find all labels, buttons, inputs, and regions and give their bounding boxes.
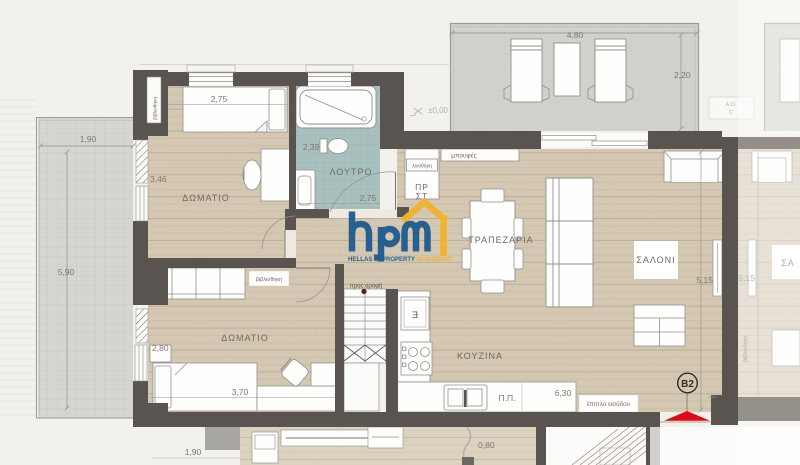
svg-text:μπουφές: μπουφές bbox=[451, 152, 477, 160]
svg-text:5,15: 5,15 bbox=[696, 275, 713, 285]
svg-text:3,70: 3,70 bbox=[232, 387, 249, 397]
svg-text:1,90: 1,90 bbox=[185, 447, 202, 457]
svg-text:ΤΡΑΠΕΖΑΡΙΑ: ΤΡΑΠΕΖΑΡΙΑ bbox=[468, 235, 533, 245]
svg-text:2,39: 2,39 bbox=[303, 142, 320, 152]
svg-text:MANAGEMENT: MANAGEMENT bbox=[417, 256, 453, 263]
svg-text:2,20: 2,20 bbox=[674, 70, 691, 80]
svg-text:Ǝ: Ǝ bbox=[412, 310, 418, 320]
svg-text:βιβλιοθήκη: βιβλιοθήκη bbox=[256, 276, 283, 283]
svg-text:HELLAS: HELLAS bbox=[348, 256, 373, 263]
svg-text:Π.Π.: Π.Π. bbox=[499, 393, 516, 403]
svg-text:1,90: 1,90 bbox=[80, 134, 97, 144]
svg-text:C: C bbox=[729, 110, 733, 116]
svg-text:PROPERTY: PROPERTY bbox=[382, 256, 415, 263]
svg-text:6,30: 6,30 bbox=[555, 388, 572, 398]
svg-text:2,75: 2,75 bbox=[360, 193, 377, 203]
svg-text:B2: B2 bbox=[681, 379, 694, 390]
svg-text:ΔΩΜΑΤΙΟ: ΔΩΜΑΤΙΟ bbox=[182, 193, 230, 203]
svg-text:3,46: 3,46 bbox=[150, 174, 167, 184]
svg-text:ΛΟΥΤΡΟ: ΛΟΥΤΡΟ bbox=[329, 167, 372, 177]
svg-text:Α.Ο.: Α.Ο. bbox=[725, 102, 736, 108]
svg-text:5,90: 5,90 bbox=[58, 267, 75, 277]
svg-text:προς οροφή: προς οροφή bbox=[350, 283, 383, 290]
svg-text:±0,00: ±0,00 bbox=[428, 106, 449, 115]
svg-text:έπιπλο εισόδου: έπιπλο εισόδου bbox=[587, 400, 631, 408]
svg-text:4,80: 4,80 bbox=[567, 30, 584, 40]
svg-text:ΔΩΜΑΤΙΟ: ΔΩΜΑΤΙΟ bbox=[221, 333, 269, 343]
svg-text:2,80: 2,80 bbox=[152, 343, 169, 353]
svg-text:0,80: 0,80 bbox=[478, 440, 495, 450]
svg-text:βιβλιοθήκη: βιβλιοθήκη bbox=[152, 97, 159, 120]
svg-text:ΚΟΥΖΙΝΑ: ΚΟΥΖΙΝΑ bbox=[457, 351, 503, 361]
svg-text:2,75: 2,75 bbox=[211, 94, 228, 104]
svg-text:λινοθήκη: λινοθήκη bbox=[412, 163, 432, 170]
svg-text:ΣΑΛΟΝΙ: ΣΑΛΟΝΙ bbox=[636, 255, 675, 265]
